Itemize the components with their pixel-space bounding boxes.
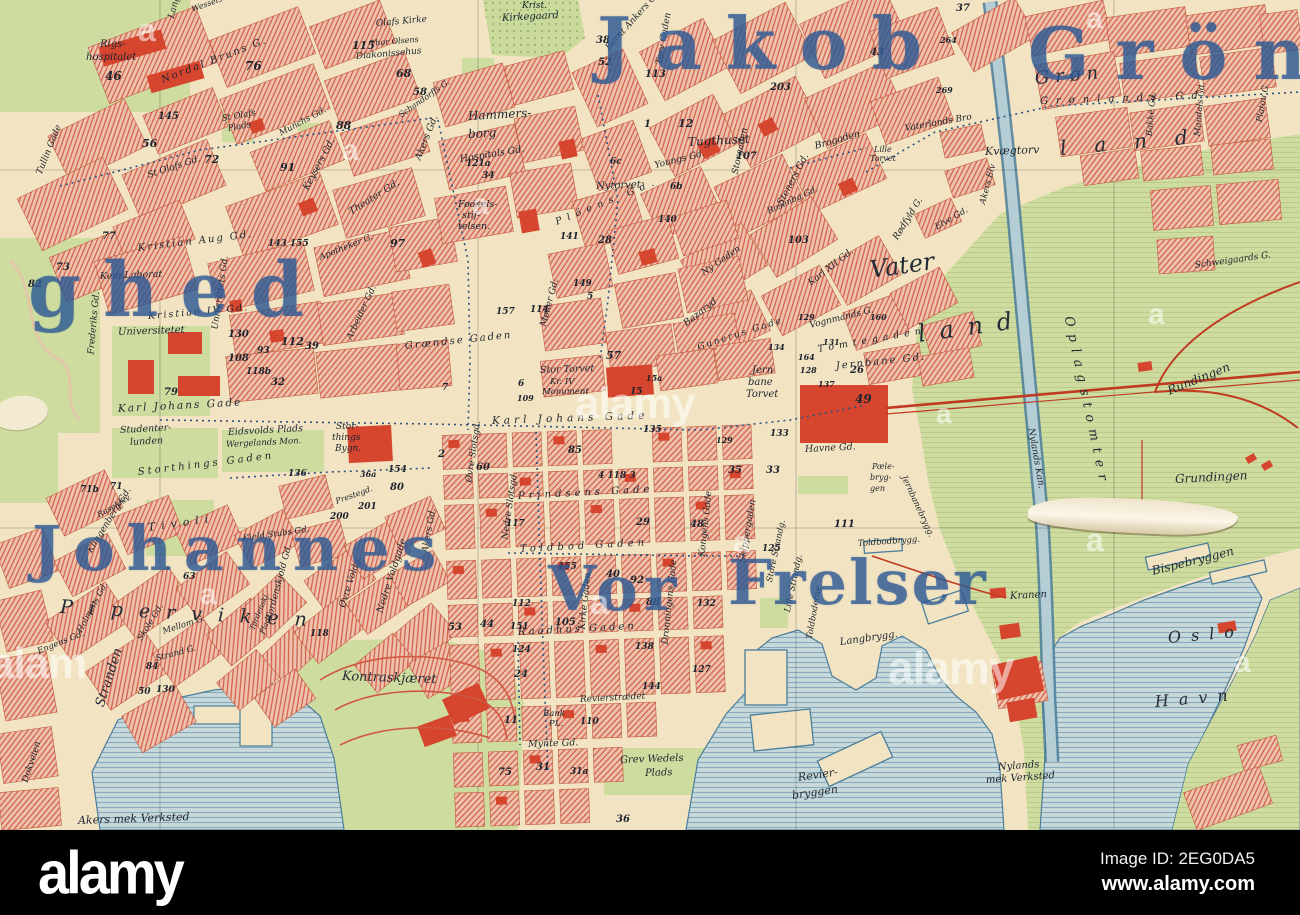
- alamy-logo: alamy: [38, 842, 182, 902]
- image-id: Image ID: 2EG0DA5: [1100, 849, 1255, 869]
- stock-photo-view: VaterlandGrønlandPipervikenOsloHavnStran…: [0, 0, 1300, 915]
- vintage-oslo-map: VaterlandGrønlandPipervikenOsloHavnStran…: [0, 0, 1300, 830]
- alamy-url: www.alamy.com: [1100, 873, 1255, 896]
- alamy-footer-bar: alamy Image ID: 2EG0DA5 www.alamy.com: [0, 830, 1300, 915]
- image-info: Image ID: 2EG0DA5 www.alamy.com: [1100, 849, 1255, 896]
- map-graphic: [0, 0, 1300, 830]
